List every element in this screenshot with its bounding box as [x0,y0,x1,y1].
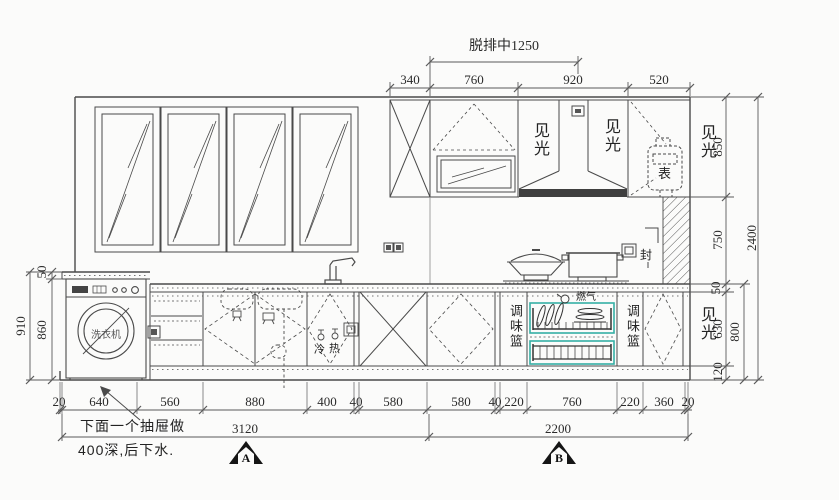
glass-cabinet [95,107,358,252]
hood-socket-icon [572,106,584,116]
glass-door [95,107,160,252]
water-valves [318,329,338,340]
tall-x-cabinet [390,100,430,197]
leader-arrow [100,386,140,420]
section-marker-a [229,441,263,464]
kitchen-elevation-drawing: 脱排中1250 340 760 920 520 850 750 50 630 1… [0,0,839,500]
gas-meter-cabinet [628,100,682,197]
drain-pipe [271,309,286,388]
cooktop [503,250,629,283]
backsplash-zone [384,197,690,284]
base-cabinets [148,292,690,380]
section-marker-b [542,441,576,464]
wok [507,250,565,280]
x-front-cabinet [360,292,426,366]
kettle-icon [557,294,569,303]
gas-pipe-socket [622,228,658,268]
drawer-stack [148,301,202,345]
countertop [150,284,690,292]
plates [535,303,606,328]
range-hood [518,100,628,197]
hatched-flue [663,197,690,284]
linework-canvas [0,0,839,500]
stock-pot [562,253,623,281]
washer-counter [62,272,150,279]
glass-door [227,107,292,252]
glass-door [293,107,358,252]
dish-rack [530,294,614,364]
socket-icon [344,323,358,336]
liftup-cabinet [430,100,518,197]
sink-assembly [221,289,358,388]
washing-machine [66,279,146,380]
upper-cabinet-band [390,100,690,197]
double-socket-icon [384,243,403,252]
faucet [325,258,355,284]
glass-door [161,107,226,252]
